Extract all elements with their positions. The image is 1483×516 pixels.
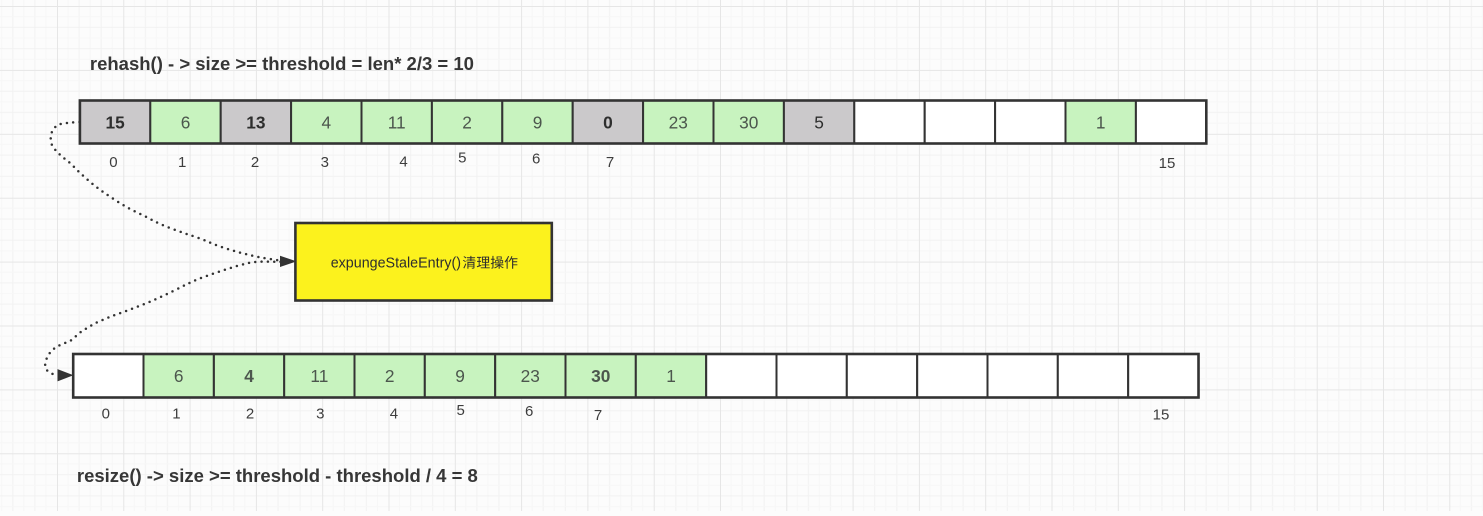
svg-text:11: 11 (388, 112, 406, 132)
svg-text:7: 7 (594, 407, 602, 424)
svg-text:2: 2 (246, 406, 254, 423)
svg-text:9: 9 (455, 366, 465, 386)
svg-text:6: 6 (174, 366, 184, 386)
svg-text:30: 30 (739, 112, 758, 132)
svg-text:15: 15 (105, 112, 125, 132)
svg-text:rehash() - > size >= threshold: rehash() - > size >= threshold = len* 2/… (90, 53, 474, 74)
svg-text:0: 0 (603, 112, 613, 132)
svg-text:7: 7 (606, 154, 614, 171)
svg-text:5: 5 (457, 402, 465, 419)
svg-text:11: 11 (310, 366, 328, 386)
svg-text:1: 1 (666, 366, 676, 386)
svg-text:2: 2 (462, 112, 472, 132)
svg-text:6: 6 (525, 403, 533, 420)
svg-text:0: 0 (102, 406, 110, 423)
svg-text:23: 23 (521, 366, 540, 386)
svg-text:30: 30 (591, 366, 610, 386)
svg-text:4: 4 (399, 153, 407, 170)
svg-text:4: 4 (321, 112, 331, 132)
svg-text:2: 2 (385, 366, 395, 386)
svg-text:13: 13 (246, 112, 265, 132)
svg-text:23: 23 (669, 112, 688, 132)
svg-text:15: 15 (1153, 406, 1170, 423)
svg-text:1: 1 (172, 406, 180, 423)
svg-text:4: 4 (390, 405, 398, 422)
svg-text:expungeStaleEntry(): expungeStaleEntry() (331, 256, 461, 272)
svg-text:6: 6 (532, 151, 540, 168)
svg-text:resize() -> size >= threshold: resize() -> size >= threshold - threshol… (77, 465, 478, 486)
svg-text:15: 15 (1159, 155, 1176, 172)
svg-text:3: 3 (321, 154, 329, 171)
svg-text:1: 1 (1096, 112, 1106, 132)
svg-text:6: 6 (181, 112, 191, 132)
svg-text:4: 4 (244, 366, 254, 386)
svg-text:9: 9 (533, 112, 543, 132)
svg-text:2: 2 (251, 154, 259, 171)
svg-text:3: 3 (316, 406, 324, 423)
svg-text:1: 1 (178, 154, 186, 171)
svg-text:5: 5 (458, 150, 466, 167)
svg-text:5: 5 (814, 112, 824, 132)
svg-text:0: 0 (109, 154, 117, 171)
